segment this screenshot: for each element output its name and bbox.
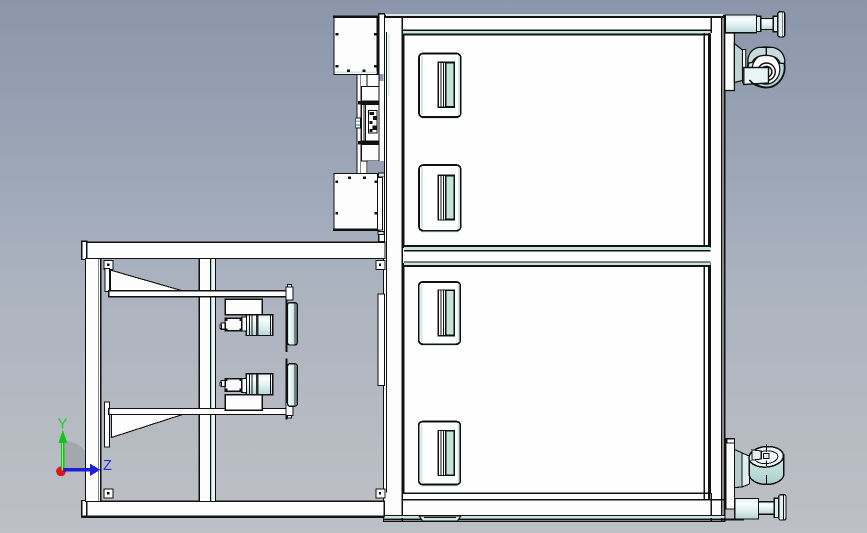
svg-text:Z: Z bbox=[103, 458, 112, 474]
svg-text:Y: Y bbox=[58, 416, 68, 433]
